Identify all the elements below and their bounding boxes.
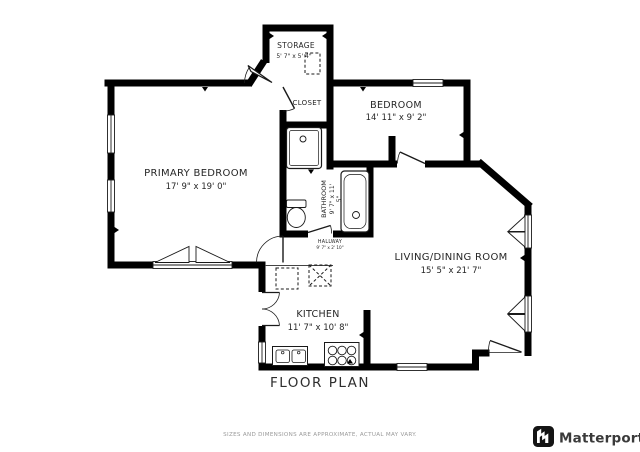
bathroom-door-icon [308, 226, 332, 234]
storage-label: STORAGE [277, 41, 315, 50]
toilet-icon [287, 200, 307, 228]
matterport-logo-text: Matterport [559, 431, 640, 447]
kitchen-dims: 11' 7" x 10' 8" [288, 323, 349, 333]
primary-bedroom-door-icon [257, 236, 284, 263]
bathroom-label: BATHROOM [320, 180, 328, 218]
closet-label: CLOSET [293, 99, 322, 107]
entry-door-icon [488, 341, 521, 353]
bedroom-door-icon [397, 152, 425, 164]
matterport-logo: Matterport [533, 426, 640, 447]
disclaimer-text: SIZES AND DIMENSIONS ARE APPROXIMATE, AC… [223, 432, 417, 438]
living-dining-label: LIVING/DINING ROOM [394, 252, 507, 263]
window-kitchen-left [259, 342, 266, 363]
storage-dims: 5' 7" x 5' 4" [276, 53, 312, 60]
window-primary-bottom-casement [153, 247, 232, 269]
kitchen-sink-icon [273, 347, 308, 366]
stove-icon [325, 343, 360, 367]
window-left-lower [108, 180, 115, 212]
bathroom-dims-line2: 5" [336, 195, 343, 202]
kitchen-label: KITCHEN [296, 309, 339, 320]
hallway-dims: 9' 7" x 2' 10" [316, 245, 343, 250]
window-left-upper [108, 115, 115, 153]
shower-icon [287, 128, 322, 169]
bedroom-dims: 14' 11" x 9' 2" [366, 113, 427, 123]
floor-plan-canvas: STORAGE 5' 7" x 5' 4" CLOSET BEDROOM 14'… [0, 0, 640, 452]
bathroom-label-group: BATHROOM 9' 7" x 11' 5" [320, 180, 343, 218]
window-living-right-upper-casement [508, 215, 532, 248]
window-bedroom-top [413, 80, 443, 87]
window-living-right-lower-casement [508, 296, 532, 332]
primary-bedroom-label: PRIMARY BEDROOM [144, 168, 248, 179]
floor-plan-page: STORAGE 5' 7" x 5' 4" CLOSET BEDROOM 14'… [0, 0, 640, 452]
plan-title: FLOOR PLAN [270, 375, 370, 391]
living-dining-dims: 15' 5" x 21' 7" [421, 266, 482, 276]
kitchen-french-doors-icon [262, 293, 280, 326]
bedroom-label: BEDROOM [370, 100, 422, 111]
window-bottom-wall [397, 364, 427, 371]
bathtub-icon [341, 171, 369, 232]
primary-bedroom-dims: 17' 9" x 19' 0" [166, 182, 227, 192]
bathroom-dims-line1: 9' 7" x 11' [329, 183, 336, 214]
